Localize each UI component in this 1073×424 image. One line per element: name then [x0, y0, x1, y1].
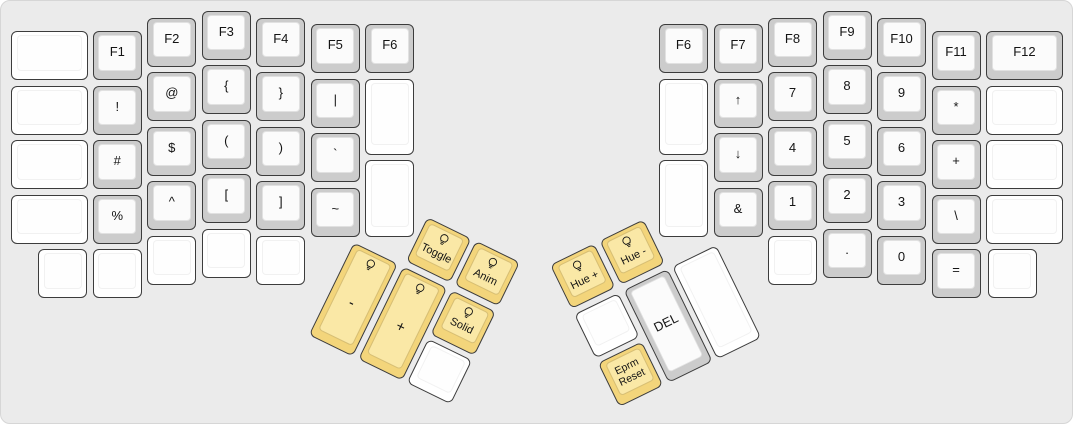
key-open-brace[interactable]: { — [202, 65, 251, 114]
keycap-top: ! — [98, 90, 136, 126]
key-legend: 4 — [775, 132, 811, 166]
key-legend: { — [208, 70, 244, 104]
key-blank[interactable] — [986, 140, 1063, 189]
keycap-top: & — [719, 192, 757, 228]
keycap-top: = — [937, 253, 975, 289]
key-legend: 6 — [884, 132, 920, 166]
key-backtick[interactable]: ` — [311, 133, 360, 182]
key-4[interactable]: 4 — [768, 127, 817, 176]
key-f6-left[interactable]: F6 — [365, 24, 414, 73]
key-legend: F9 — [829, 16, 865, 50]
keycap-top: 8 — [828, 69, 866, 105]
key-legend: [ — [208, 179, 244, 213]
keycap-top: * — [937, 90, 975, 126]
key-legend: 7 — [775, 77, 811, 111]
key-legend: ~ — [317, 193, 353, 227]
key-legend: 5 — [829, 125, 865, 159]
key-legend: F12 — [993, 36, 1057, 70]
key-legend: F4 — [263, 23, 299, 57]
key-caret[interactable]: ^ — [147, 181, 196, 230]
keycap-top: 1 — [774, 185, 812, 221]
key-blank[interactable] — [988, 249, 1037, 298]
keyboard-panel: F1!#%F2@$^F3{([F4})]F5|`~F6F6F7↑↓&F8741F… — [0, 0, 1073, 424]
key-8[interactable]: 8 — [823, 65, 872, 114]
key-legend: 8 — [829, 70, 865, 104]
key-blank[interactable] — [38, 249, 87, 298]
key-open-paren[interactable]: ( — [202, 120, 251, 169]
key-0[interactable]: 0 — [877, 236, 926, 285]
key-blank[interactable] — [202, 229, 251, 278]
key-legend: 0 — [884, 241, 920, 275]
key-legend — [18, 36, 82, 70]
keycap-top: F6 — [665, 28, 703, 64]
key-backslash[interactable]: \ — [932, 195, 981, 244]
key-f12[interactable]: F12 — [986, 31, 1063, 80]
key-1[interactable]: 1 — [768, 181, 817, 230]
key-legend: ` — [317, 138, 353, 172]
keycap-top: ^ — [153, 185, 191, 221]
keycap-top — [17, 90, 83, 126]
key-f3[interactable]: F3 — [202, 11, 251, 60]
key-legend: F6 — [372, 29, 408, 63]
key-close-brace[interactable]: } — [256, 72, 305, 121]
keycap-top: ` — [316, 137, 354, 173]
keycap-top — [665, 164, 703, 227]
key-legend: F8 — [775, 23, 811, 57]
keycap-top — [371, 83, 409, 146]
key-blank[interactable] — [365, 160, 414, 236]
key-period[interactable]: . — [823, 229, 872, 278]
key-legend: } — [263, 77, 299, 111]
keycap-top: { — [207, 69, 245, 105]
key-exclamation[interactable]: ! — [93, 86, 142, 135]
key-blank[interactable] — [256, 236, 305, 285]
keycap-top — [992, 90, 1058, 126]
key-legend — [666, 165, 702, 226]
key-legend: ^ — [154, 186, 190, 220]
keycap-top: Hue - — [606, 226, 656, 275]
key-3[interactable]: 3 — [877, 181, 926, 230]
keycap-top: F7 — [719, 28, 757, 64]
key-legend: = — [938, 254, 974, 288]
keycap-top: F4 — [262, 22, 300, 58]
keycap-top — [17, 144, 83, 180]
keycap-top: F6 — [371, 28, 409, 64]
key-legend: F11 — [938, 36, 974, 70]
key-blank[interactable] — [659, 160, 708, 236]
key-legend: 9 — [884, 77, 920, 111]
keycap-top: F11 — [937, 35, 975, 71]
keycap-top — [993, 253, 1031, 289]
keycap-top: 2 — [828, 178, 866, 214]
keycap-top: Hue + — [557, 250, 607, 299]
key-legend: . — [829, 234, 865, 268]
key-f1[interactable]: F1 — [93, 31, 142, 80]
key-f7[interactable]: F7 — [714, 24, 763, 73]
keycap-top: 5 — [828, 124, 866, 160]
key-ampersand[interactable]: & — [714, 188, 763, 237]
keycap-top: # — [98, 144, 136, 180]
key-legend — [775, 241, 811, 275]
keycap-top: F5 — [316, 28, 354, 64]
keycap-top: Anim — [464, 247, 514, 296]
key-legend: EprmReset — [606, 349, 653, 395]
keycap-top: | — [316, 83, 354, 119]
keycap-top: F2 — [153, 22, 191, 58]
keycap-top: 3 — [883, 185, 921, 221]
key-legend — [18, 145, 82, 179]
key-legend: $ — [154, 132, 190, 166]
key-legend — [372, 84, 408, 145]
keycap-top — [262, 240, 300, 276]
key-at[interactable]: @ — [147, 72, 196, 121]
keycap-top: 9 — [883, 76, 921, 112]
key-legend: Hue - — [614, 240, 654, 272]
keycap-top: Toggle — [415, 223, 465, 272]
keycap-top: F9 — [828, 15, 866, 51]
keycap-top — [581, 299, 631, 348]
keycap-top: ( — [207, 124, 245, 160]
key-arrow-up[interactable]: ↑ — [714, 79, 763, 128]
key-legend: F2 — [154, 23, 190, 57]
key-2[interactable]: 2 — [823, 174, 872, 223]
key-blank[interactable] — [986, 86, 1063, 135]
key-blank[interactable] — [11, 31, 88, 80]
key-equals[interactable]: = — [932, 249, 981, 298]
key-legend: * — [938, 91, 974, 125]
key-legend — [993, 91, 1057, 125]
keycap-top: 4 — [774, 131, 812, 167]
keycap-top — [153, 240, 191, 276]
key-9[interactable]: 9 — [877, 72, 926, 121]
key-5[interactable]: 5 — [823, 120, 872, 169]
key-close-paren[interactable]: ) — [256, 127, 305, 176]
keycap-top: F10 — [883, 22, 921, 58]
keycap-top — [992, 144, 1058, 180]
key-6[interactable]: 6 — [877, 127, 926, 176]
key-legend — [45, 254, 81, 288]
keycap-top: 7 — [774, 76, 812, 112]
keycap-top: $ — [153, 131, 191, 167]
keycap-top — [416, 345, 466, 394]
key-f9[interactable]: F9 — [823, 11, 872, 60]
key-legend: ] — [263, 186, 299, 220]
key-legend: & — [720, 193, 756, 227]
key-blank[interactable] — [11, 140, 88, 189]
key-close-bracket[interactable]: ] — [256, 181, 305, 230]
key-arrow-down[interactable]: ↓ — [714, 133, 763, 182]
keycap-top — [665, 83, 703, 146]
key-legend: F3 — [208, 16, 244, 50]
key-legend — [372, 165, 408, 226]
keycap-top — [774, 240, 812, 276]
key-legend: # — [99, 145, 135, 179]
key-blank[interactable] — [659, 79, 708, 155]
key-plus[interactable]: + — [932, 140, 981, 189]
key-7[interactable]: 7 — [768, 72, 817, 121]
key-legend: F10 — [884, 23, 920, 57]
keycap-top — [17, 35, 83, 71]
keycap-top: ] — [262, 185, 300, 221]
key-f10[interactable]: F10 — [877, 18, 926, 67]
keycap-top: % — [98, 199, 136, 235]
keycap-top: F1 — [98, 35, 136, 71]
key-dollar[interactable]: $ — [147, 127, 196, 176]
key-blank[interactable] — [11, 195, 88, 244]
keyboard-layout-stage: F1!#%F2@$^F3{([F4})]F5|`~F6F6F7↑↓&F8741F… — [0, 0, 1073, 424]
keycap-top: ) — [262, 131, 300, 167]
key-legend: 3 — [884, 186, 920, 220]
keycap-top: EprmReset — [604, 347, 654, 396]
keycap-top — [44, 253, 82, 289]
key-legend: | — [317, 84, 353, 118]
keycap-top: Solid — [440, 296, 490, 345]
key-open-bracket[interactable]: [ — [202, 174, 251, 223]
key-f2[interactable]: F2 — [147, 18, 196, 67]
key-legend — [154, 241, 190, 275]
key-legend — [582, 300, 629, 346]
key-legend: 2 — [829, 179, 865, 213]
key-legend — [993, 200, 1057, 234]
keycap-top: \ — [937, 199, 975, 235]
key-percent[interactable]: % — [93, 195, 142, 244]
key-legend: F5 — [317, 29, 353, 63]
key-legend: ↑ — [720, 84, 756, 118]
key-legend: F6 — [666, 29, 702, 63]
keycap-top: @ — [153, 76, 191, 112]
key-f11[interactable]: F11 — [932, 31, 981, 80]
key-f5[interactable]: F5 — [311, 24, 360, 73]
key-legend: % — [99, 200, 135, 234]
keycap-top — [371, 164, 409, 227]
key-blank[interactable] — [93, 249, 142, 298]
keycap-top: F3 — [207, 15, 245, 51]
key-legend — [18, 91, 82, 125]
key-legend — [263, 241, 299, 275]
key-legend: + — [938, 145, 974, 179]
key-legend: ! — [99, 91, 135, 125]
key-legend: \ — [938, 200, 974, 234]
key-f8[interactable]: F8 — [768, 18, 817, 67]
keycap-top — [992, 199, 1058, 235]
keycap-top: ↓ — [719, 137, 757, 173]
key-blank[interactable] — [11, 86, 88, 135]
key-tilde[interactable]: ~ — [311, 188, 360, 237]
keycap-top: F12 — [992, 35, 1058, 71]
key-legend — [208, 234, 244, 268]
keycap-top: } — [262, 76, 300, 112]
keycap-top — [207, 233, 245, 269]
key-blank[interactable] — [365, 79, 414, 155]
keycap-top: 6 — [883, 131, 921, 167]
key-blank[interactable] — [147, 236, 196, 285]
key-legend: Hue + — [565, 264, 605, 296]
key-legend: 1 — [775, 186, 811, 220]
keycap-top: . — [828, 233, 866, 269]
keycap-top — [98, 253, 136, 289]
keycap-top: [ — [207, 178, 245, 214]
key-pipe[interactable]: | — [311, 79, 360, 128]
key-f4[interactable]: F4 — [256, 18, 305, 67]
key-legend — [99, 254, 135, 288]
key-legend — [994, 254, 1030, 288]
keycap-top: ↑ — [719, 83, 757, 119]
key-hash[interactable]: # — [93, 140, 142, 189]
key-legend — [417, 346, 464, 392]
key-legend: F1 — [99, 36, 135, 70]
keycap-top: 0 — [883, 240, 921, 276]
key-legend: ) — [263, 132, 299, 166]
key-legend: @ — [154, 77, 190, 111]
key-legend: ( — [208, 125, 244, 159]
key-legend — [18, 200, 82, 234]
key-legend — [993, 145, 1057, 179]
keycap-top — [17, 199, 83, 235]
keycap-top: ~ — [316, 192, 354, 228]
key-f6-right[interactable]: F6 — [659, 24, 708, 73]
keycap-top: F8 — [774, 22, 812, 58]
key-legend: F7 — [720, 29, 756, 63]
key-legend — [666, 84, 702, 145]
key-blank[interactable] — [986, 195, 1063, 244]
key-asterisk[interactable]: * — [932, 86, 981, 135]
key-blank[interactable] — [768, 236, 817, 285]
keycap-top: + — [937, 144, 975, 180]
key-legend: ↓ — [720, 138, 756, 172]
